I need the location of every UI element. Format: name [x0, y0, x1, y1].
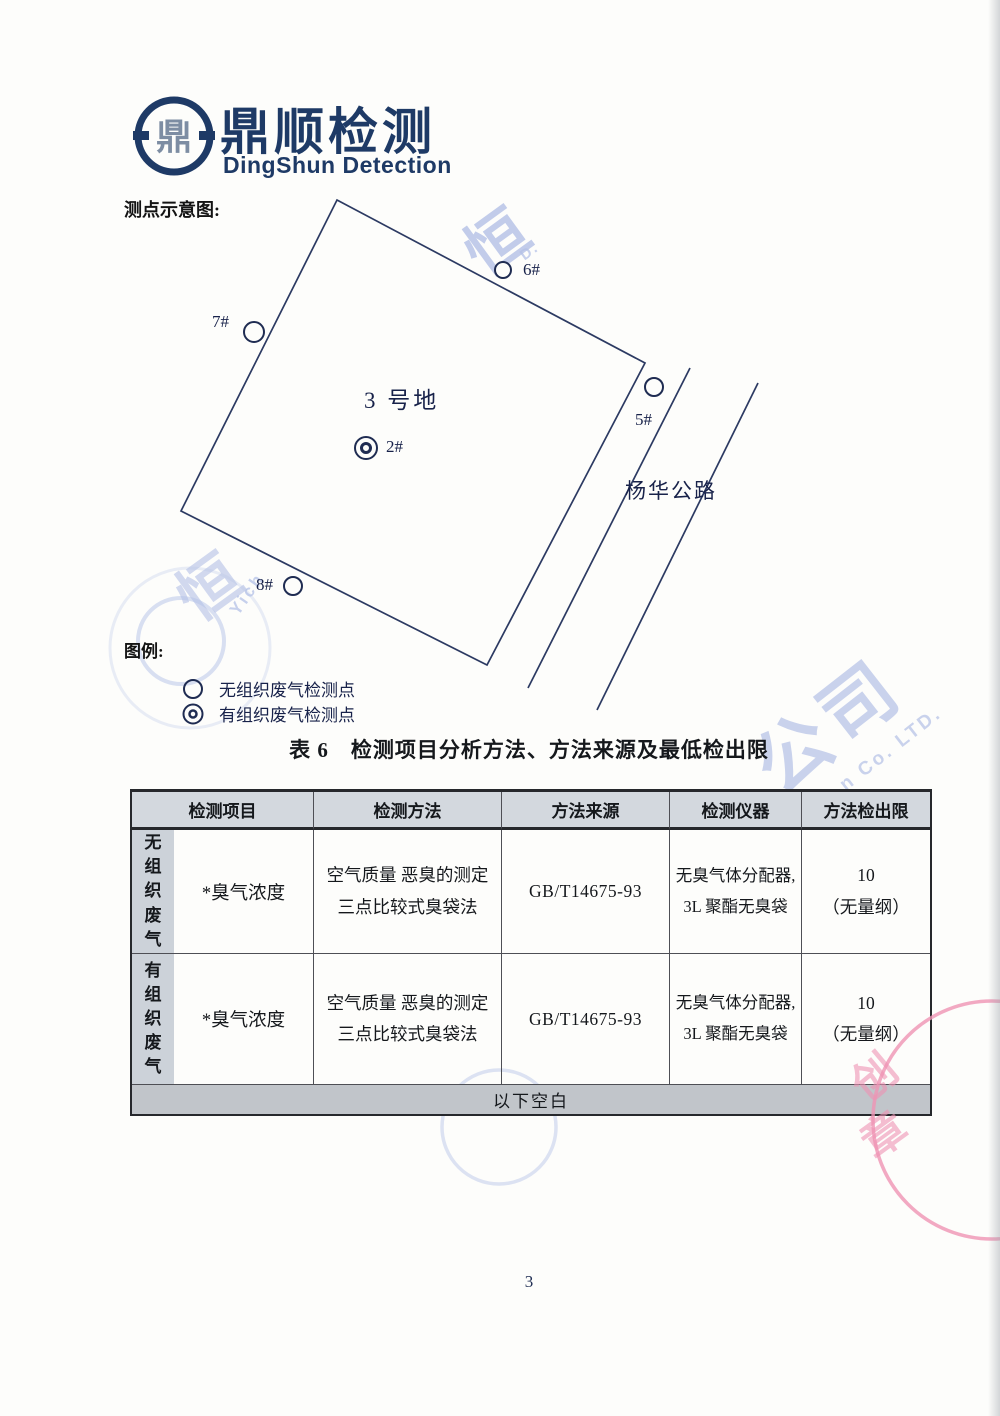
cell-method: 空气质量 恶臭的测定 三点比较式臭袋法 — [314, 830, 502, 954]
legend-title: 图例: — [124, 637, 164, 662]
row-category-label: 无组织废气 — [143, 831, 163, 952]
limit-line-2: （无量纲） — [822, 892, 910, 924]
legend-item-label: 有组织废气检测点 — [219, 701, 355, 726]
monitor-point-5-label: 5# — [635, 410, 652, 430]
scanned-report-page: 恒 D. 恒 Yich 公司 n Co. LTD. 鼎 鼎顺检测 DingShu… — [0, 0, 1000, 1416]
instrument-line-2: 3L 聚酯无臭袋 — [683, 1019, 787, 1050]
row-category-label: 有组织废气 — [143, 959, 163, 1080]
watermark-chars-right: 公司 — [742, 638, 928, 806]
method-line-1: 空气质量 恶臭的测定 — [327, 860, 489, 892]
single-circle-icon — [181, 677, 205, 701]
column-header-source: 方法来源 — [502, 792, 670, 830]
emblem-band-left — [133, 131, 149, 140]
site-name-label: 3 号地 — [364, 381, 439, 415]
analysis-method-table: 检测项目 检测方法 方法来源 检测仪器 方法检出限 无组织废气 *臭气浓度 空气… — [130, 789, 932, 1116]
table-footer-blank-note: 以下空白 — [132, 1085, 930, 1114]
scan-edge-shadow — [988, 0, 1000, 1416]
company-name-en: DingShun Detection — [223, 152, 452, 179]
monitor-point-7-label: 7# — [212, 312, 229, 332]
monitor-point-2-inner-circle — [362, 444, 371, 453]
road-line-1 — [528, 368, 690, 688]
cell-source: GB/T14675-93 — [502, 954, 670, 1085]
method-line-2: 三点比较式臭袋法 — [338, 1019, 478, 1051]
column-header-instrument: 检测仪器 — [670, 792, 802, 830]
monitor-point-5-circle — [645, 378, 663, 396]
row-category-organized: 有组织废气 — [132, 954, 174, 1085]
instrument-line-1: 无臭气体分配器, — [676, 861, 796, 892]
legend-item-unorganized: 无组织废气检测点 — [181, 676, 355, 701]
cell-method: 空气质量 恶臭的测定 三点比较式臭袋法 — [314, 954, 502, 1085]
company-logo-emblem: 鼎 — [132, 86, 216, 186]
cell-limit: 10 （无量纲） — [802, 830, 930, 954]
method-line-2: 三点比较式臭袋法 — [338, 892, 478, 924]
column-header-item: 检测项目 — [132, 792, 314, 830]
legend-item-organized: 有组织废气检测点 — [181, 701, 355, 726]
monitor-point-8-label: 8# — [256, 575, 273, 595]
legend-item-label: 无组织废气检测点 — [219, 676, 355, 701]
column-header-method: 检测方法 — [314, 792, 502, 830]
instrument-line-1: 无臭气体分配器, — [676, 988, 796, 1019]
road-name-label: 杨华公路 — [625, 475, 717, 505]
cell-instrument: 无臭气体分配器, 3L 聚酯无臭袋 — [670, 830, 802, 954]
road-line-2 — [597, 383, 758, 710]
row-category-unorganized: 无组织废气 — [132, 830, 174, 954]
monitor-point-2-outer-circle — [355, 437, 377, 459]
method-line-1: 空气质量 恶臭的测定 — [327, 988, 489, 1020]
emblem-band-right — [199, 131, 215, 140]
cell-source: GB/T14675-93 — [502, 830, 670, 954]
diagram-section-label: 测点示意图: — [124, 196, 220, 222]
column-header-limit: 方法检出限 — [802, 792, 930, 830]
limit-line-1: 10 — [857, 860, 875, 892]
cell-item: *臭气浓度 — [174, 830, 314, 954]
monitor-point-7-circle — [244, 322, 264, 342]
cell-item: *臭气浓度 — [174, 954, 314, 1085]
double-circle-icon — [181, 702, 205, 726]
monitor-point-6-label: 6# — [523, 260, 540, 280]
table-title: 表 6 检测项目分析方法、方法来源及最低检出限 — [130, 734, 928, 764]
instrument-line-2: 3L 聚酯无臭袋 — [683, 892, 787, 923]
cell-instrument: 无臭气体分配器, 3L 聚酯无臭袋 — [670, 954, 802, 1085]
monitor-point-8-circle — [284, 577, 302, 595]
limit-line-1: 10 — [857, 988, 875, 1020]
monitor-point-2-label: 2# — [386, 437, 403, 457]
page-number: 3 — [130, 1272, 928, 1292]
emblem-glyph: 鼎 — [156, 116, 192, 157]
